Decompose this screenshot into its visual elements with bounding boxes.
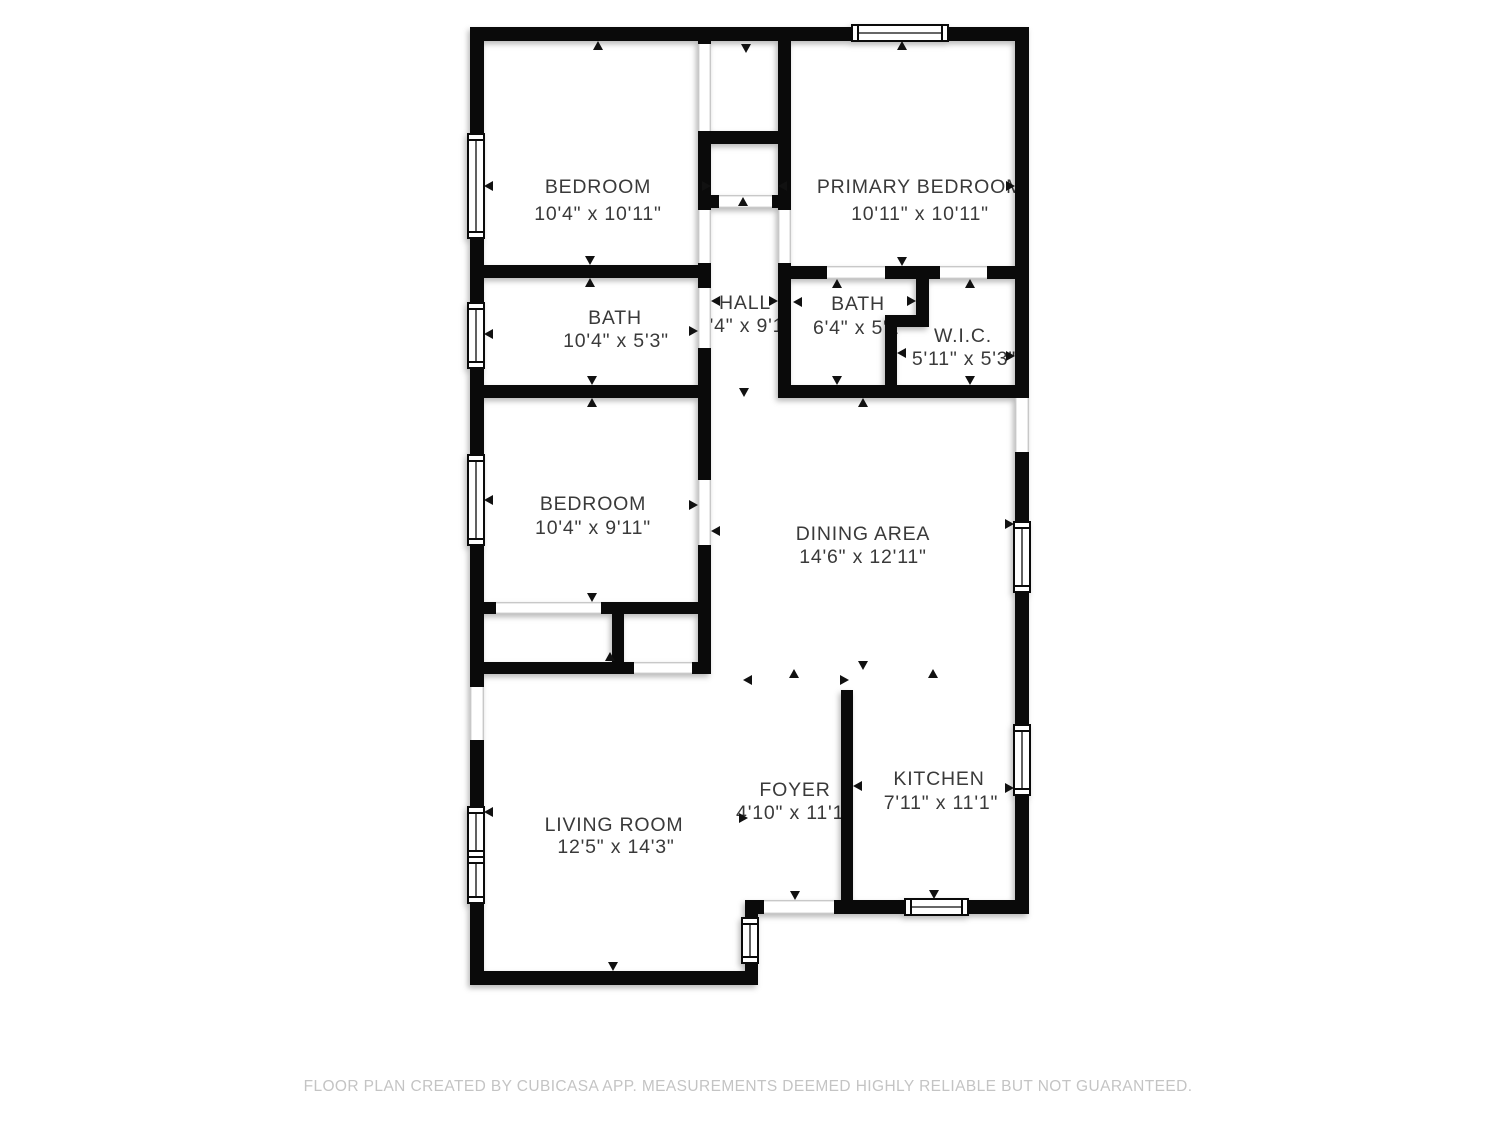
room-label-wic: W.I.C. <box>934 325 992 347</box>
floor-plan-page: BEDROOM 10'4" x 10'11" PRIMARY BEDROOM 1… <box>0 0 1500 1125</box>
wall-segment <box>470 740 484 807</box>
door-opening <box>698 288 711 348</box>
door-opening <box>470 687 484 740</box>
window-symbol <box>1014 725 1030 795</box>
room-label-foyer: FOYER <box>759 779 830 801</box>
room-label-bedroom-top: BEDROOM <box>545 176 651 198</box>
window-symbol <box>468 807 484 857</box>
room-dims-wic: 5'11" x 5'3" <box>912 348 1016 370</box>
room-label-bath-left: BATH <box>588 307 642 329</box>
window-symbol <box>468 857 484 903</box>
wall-segment <box>698 348 711 480</box>
footer-disclaimer: FLOOR PLAN CREATED BY CUBICASA APP. MEAS… <box>304 1078 1193 1095</box>
window-symbol <box>1014 522 1030 592</box>
wall-segment <box>470 238 484 303</box>
window-symbol <box>852 25 948 41</box>
door-opening <box>1015 395 1029 452</box>
wall-segment <box>470 27 852 41</box>
wall-segment <box>470 971 758 985</box>
wall-segment <box>745 963 758 985</box>
wall-segment <box>698 131 711 210</box>
wall-segment <box>470 385 711 398</box>
wall-segment <box>612 602 624 674</box>
wall-segment <box>1015 795 1029 914</box>
room-label-bedroom-middle: BEDROOM <box>540 493 646 515</box>
wall-segment <box>885 315 897 397</box>
wall-segment <box>470 27 484 134</box>
room-dims-primary-bedroom: 10'11" x 10'11" <box>851 203 989 225</box>
wall-segment <box>1015 27 1029 395</box>
wall-segment <box>698 263 711 288</box>
wall-segment <box>698 27 711 44</box>
wall-segment <box>1015 592 1029 725</box>
room-label-kitchen: KITCHEN <box>893 768 984 790</box>
window-symbol <box>742 918 758 963</box>
door-opening <box>698 210 711 263</box>
door-opening <box>940 266 987 279</box>
room-dims-bath-left: 10'4" x 5'3" <box>563 330 669 352</box>
room-dims-foyer: 4'10" x 11'1" <box>736 802 852 824</box>
wall-segment <box>778 385 1029 398</box>
wall-segment <box>745 900 758 918</box>
room-dims-hall: 3'4" x 9'1" <box>698 315 792 337</box>
door-opening <box>827 266 885 279</box>
window-symbol <box>468 455 484 545</box>
window-symbol <box>905 899 968 915</box>
door-opening <box>698 44 711 131</box>
door-opening <box>634 662 692 674</box>
wall-segment <box>885 266 940 279</box>
room-label-hall: HALL <box>719 292 771 314</box>
door-opening <box>778 210 791 263</box>
wall-segment <box>470 265 711 278</box>
room-dims-living-room: 12'5" x 14'3" <box>557 836 674 858</box>
wall-segment <box>698 545 711 674</box>
wall-segment <box>470 903 484 985</box>
room-label-living-room: LIVING ROOM <box>545 814 684 836</box>
wall-segment <box>698 131 791 144</box>
room-label-dining-area: DINING AREA <box>796 523 931 545</box>
room-dims-bedroom-middle: 10'4" x 9'11" <box>535 517 651 539</box>
door-opening <box>764 900 834 914</box>
room-label-bath-middle: BATH <box>831 293 885 315</box>
wall-segment <box>470 545 484 687</box>
wall-segment <box>1015 452 1029 522</box>
room-dims-dining-area: 14'6" x 12'11" <box>799 546 927 568</box>
wall-segment <box>470 662 634 674</box>
wall-segment <box>841 690 853 914</box>
room-dims-kitchen: 7'11" x 11'1" <box>884 792 998 814</box>
room-label-primary-bedroom: PRIMARY BEDROOM <box>817 176 1023 198</box>
wall-segment <box>470 368 484 455</box>
window-symbol <box>468 303 484 368</box>
floor-plan-svg: BEDROOM 10'4" x 10'11" PRIMARY BEDROOM 1… <box>0 0 1500 1125</box>
room-dims-bedroom-top: 10'4" x 10'11" <box>534 203 662 225</box>
window-symbol <box>468 134 484 238</box>
door-opening <box>496 602 601 614</box>
wall-segment <box>778 263 791 398</box>
door-opening <box>698 480 711 545</box>
